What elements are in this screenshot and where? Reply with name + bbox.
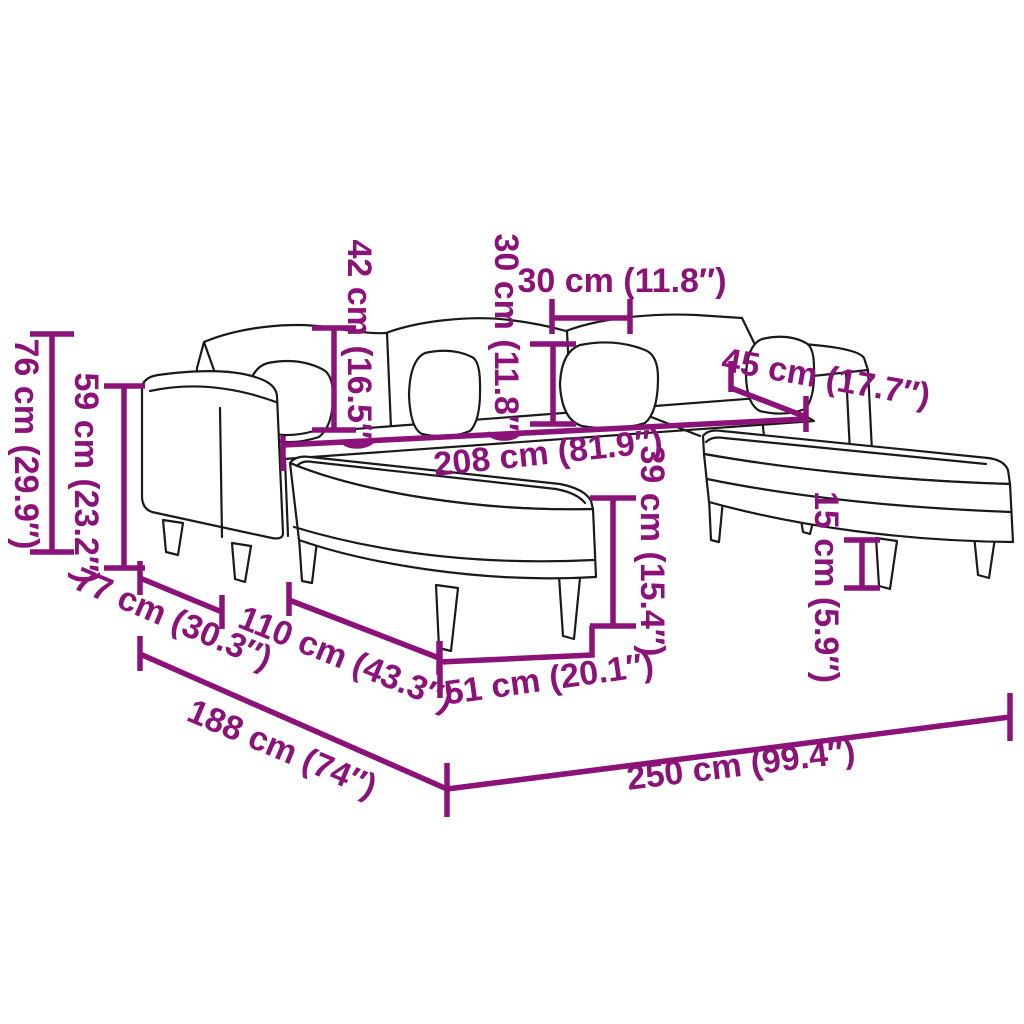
dim-label-total-height: 76 cm (29.9″) xyxy=(7,339,45,550)
dim-label-total-width: 250 cm (99.4″) xyxy=(625,732,858,798)
seat-front-edge xyxy=(285,460,288,536)
sofa-dimension-diagram: 76 cm (29.9″) 59 cm (23.2″) 42 cm (16.5″… xyxy=(0,0,1024,1024)
dim-label-cushion-width: 30 cm (11.8″) xyxy=(517,262,726,300)
footstool-leg xyxy=(876,538,897,589)
armrest-leg xyxy=(232,543,251,582)
dim-label-footstool-height: 39 cm (15.4″) xyxy=(633,446,671,657)
dim-label-armrest-height: 59 cm (23.2″) xyxy=(67,373,105,584)
dim-label-leg-height: 15 cm (5.9″) xyxy=(807,491,845,683)
diagram-canvas: 76 cm (29.9″) 59 cm (23.2″) 42 cm (16.5″… xyxy=(0,0,1024,1024)
footstool-leg xyxy=(559,576,580,639)
dim-label-backrest-height: 42 cm (16.5″) xyxy=(340,240,378,451)
dimension-footstool-height: 39 cm (15.4″) xyxy=(590,446,671,657)
throw-pillow xyxy=(409,351,480,437)
dimension-total-width: 250 cm (99.4″) xyxy=(447,693,1010,817)
dimension-total-height: 76 cm (29.9″) xyxy=(7,334,74,552)
sofa-line-art xyxy=(142,315,1013,651)
armrest-leg xyxy=(163,520,183,555)
dimension-footstool-depth: 51 cm (20.1″) xyxy=(440,626,656,712)
dimension-armrest-height: 59 cm (23.2″) xyxy=(67,373,145,584)
throw-pillow xyxy=(560,342,658,428)
